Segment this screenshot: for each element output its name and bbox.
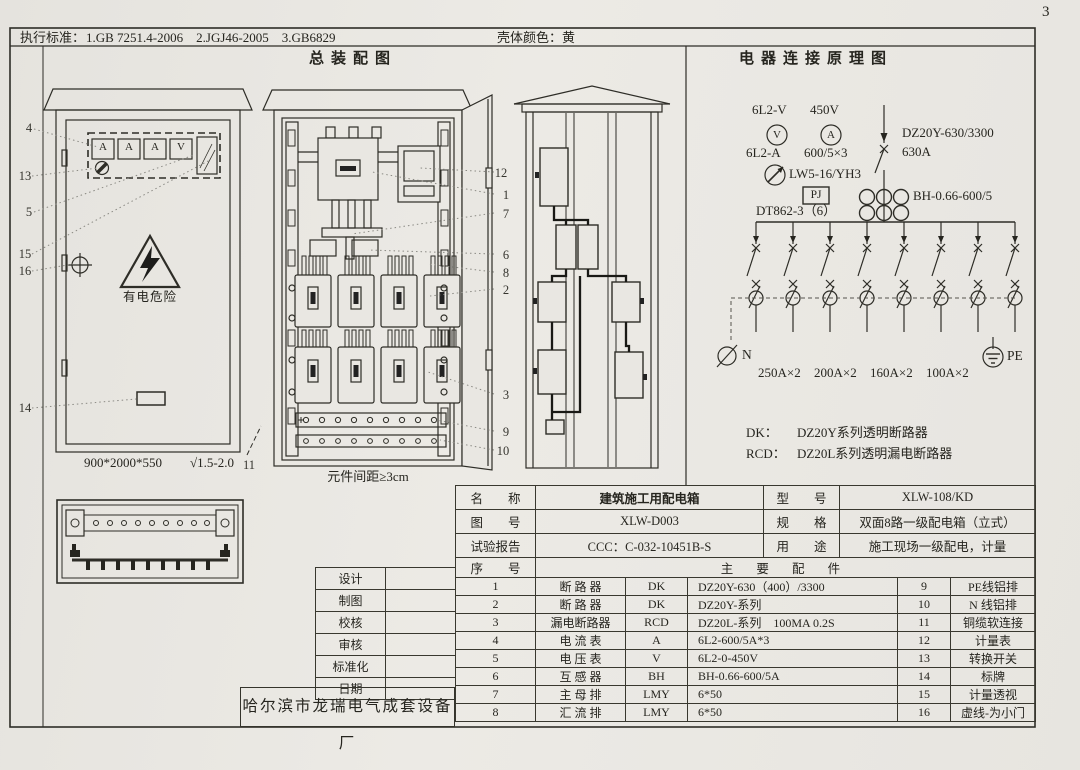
callout: 4 <box>18 121 40 135</box>
callout: 13 <box>14 169 36 183</box>
part-spec: DZ20L-系列 100MA 0.2S <box>688 614 898 632</box>
part-no: 7 <box>456 686 536 704</box>
sign-row: 设计 <box>316 568 456 590</box>
legend-dk-desc: DZ20Y系列透明断路器 <box>797 426 928 441</box>
ct-ratio: 600/5×3 <box>804 146 847 161</box>
part-name: 汇 流 排 <box>536 704 626 722</box>
sign-label: 制图 <box>316 590 386 612</box>
branch-circuits <box>747 222 1022 332</box>
legend-rcd-desc: DZ20L系列透明漏电断路器 <box>797 447 952 462</box>
part-name: 电 压 表 <box>536 650 626 668</box>
sign-row: 制图 <box>316 590 456 612</box>
callout: 14 <box>14 401 36 415</box>
part-name2: N 线铝排 <box>951 596 1036 614</box>
breaker-row-1 <box>289 256 460 327</box>
sign-value <box>386 590 456 612</box>
part-row: 3漏电断路器RCDDZ20L-系列 100MA 0.2S11铜缆软连接 <box>456 614 1036 632</box>
part-code: RCD <box>626 614 688 632</box>
part-no2: 10 <box>898 596 951 614</box>
side-view-drawing <box>514 86 670 468</box>
field-label: 规 格 <box>764 510 840 534</box>
switch-model: LW5-16/YH3 <box>789 167 861 182</box>
ct-model: BH-0.66-600/5 <box>913 189 992 204</box>
schematic-title: 电器连接原理图 <box>726 51 906 68</box>
callout: 2 <box>495 283 517 297</box>
part-name2: 计量表 <box>951 632 1036 650</box>
part-code: DK <box>626 596 688 614</box>
panel-meter-label: A <box>118 141 140 154</box>
open-view-drawing <box>263 90 494 470</box>
part-name: 断 路 器 <box>536 578 626 596</box>
neutral-label: N <box>742 347 752 363</box>
part-row: 6互 感 器BHBH-0.66-600/5A14标牌 <box>456 668 1036 686</box>
part-no2: 13 <box>898 650 951 668</box>
model-number: XLW-108/KD <box>840 486 1036 510</box>
field-label: 试验报告 <box>456 534 536 558</box>
table-row: 试验报告 CCC：C-032-10451B-S 用 途 施工现场一级配电，计量 <box>456 534 1036 558</box>
legend-dk-term: DK： <box>746 426 778 441</box>
part-code: LMY <box>626 704 688 722</box>
callout: 6 <box>495 248 517 262</box>
parts-header: 主 要 配 件 <box>536 558 1036 578</box>
sign-label: 标准化 <box>316 656 386 678</box>
panel-meter-label: A <box>92 141 114 154</box>
scanned-drawing-page: 3 执行标准： 1.GB 7251.4-2006 2.JGJ46-2005 3.… <box>0 0 1080 770</box>
table-row: 序 号 主 要 配 件 <box>456 558 1036 578</box>
standards-label: 执行标准： <box>20 31 85 46</box>
branch-rating: 160A×2 <box>870 366 913 381</box>
part-no: 3 <box>456 614 536 632</box>
voltmeter-symbol-letter: V <box>767 129 787 142</box>
part-spec: 6L2-600/5A*3 <box>688 632 898 650</box>
pj-label: PJ <box>803 189 829 202</box>
field-label: 名 称 <box>456 486 536 510</box>
branch-rating: 200A×2 <box>814 366 857 381</box>
sign-value <box>386 656 456 678</box>
branch-rating: 250A×2 <box>758 366 801 381</box>
sign-label: 校核 <box>316 612 386 634</box>
assembly-title: 总装配图 <box>268 51 438 68</box>
signature-table: 设计 制图 校核 审核 标准化 日期 <box>315 567 456 700</box>
part-spec: DZ20Y-630（400）/3300 <box>688 578 898 596</box>
panel-meter-label: V <box>170 141 192 154</box>
part-row: 7主 母 排LMY6*5015计量透视 <box>456 686 1036 704</box>
branch-rating: 100A×2 <box>926 366 969 381</box>
specification: 双面8路一级配电箱（立式） <box>840 510 1036 534</box>
callout: 16 <box>14 264 36 278</box>
part-no2: 9 <box>898 578 951 596</box>
part-no2: 14 <box>898 668 951 686</box>
page-number: 3 <box>1042 4 1050 21</box>
callout: 9 <box>495 425 517 439</box>
callout: 1 <box>495 188 517 202</box>
callout: 10 <box>492 444 514 458</box>
part-no: 6 <box>456 668 536 686</box>
sign-row: 标准化 <box>316 656 456 678</box>
part-no: 5 <box>456 650 536 668</box>
warning-text: 有电危险 <box>114 290 186 304</box>
standards-value: 1.GB 7251.4-2006 2.JGJ46-2005 3.GB6829 <box>86 31 336 46</box>
parts-header-table: 序 号 主 要 配 件 <box>455 557 1036 578</box>
part-name: 主 母 排 <box>536 686 626 704</box>
part-code: A <box>626 632 688 650</box>
sign-value <box>386 568 456 590</box>
product-name: 建筑施工用配电箱 <box>536 486 764 510</box>
shell-color-label: 壳体颜色： <box>497 31 562 46</box>
part-row: 5电 压 表V6L2-0-450V13转换开关 <box>456 650 1036 668</box>
part-no2: 12 <box>898 632 951 650</box>
callout-11: 11 <box>238 458 260 472</box>
cabinet-dimension: 900*2000*550 <box>84 456 162 471</box>
table-row: 名 称 建筑施工用配电箱 型 号 XLW-108/KD <box>456 486 1036 510</box>
panel-meter-label: A <box>144 141 166 154</box>
part-code: DK <box>626 578 688 596</box>
busbar-detail-drawing <box>57 500 243 583</box>
part-name2: 转换开关 <box>951 650 1036 668</box>
part-spec: 6L2-0-450V <box>688 650 898 668</box>
callout: 8 <box>495 266 517 280</box>
voltmeter-model: 6L2-V <box>752 103 787 118</box>
ammeter-symbol-letter: A <box>821 129 841 142</box>
part-name2: PE线铝排 <box>951 578 1036 596</box>
field-label: 用 途 <box>764 534 840 558</box>
shell-color-value: 黄 <box>562 31 575 46</box>
part-spec: 6*50 <box>688 704 898 722</box>
callout: 5 <box>18 205 40 219</box>
part-row: 8汇 流 排LMY6*5016虚线-为小门 <box>456 704 1036 722</box>
seq-header: 序 号 <box>456 558 536 578</box>
part-name2: 计量透视 <box>951 686 1036 704</box>
energy-meter-model: DT862-3（6） <box>756 204 836 219</box>
part-no2: 15 <box>898 686 951 704</box>
part-spec: 6*50 <box>688 686 898 704</box>
voltmeter-range: 450V <box>810 103 839 118</box>
sign-value <box>386 634 456 656</box>
sign-row: 校核 <box>316 612 456 634</box>
parts-table: 1断 路 器DKDZ20Y-630（400）/33009PE线铝排 2断 路 器… <box>455 577 1036 722</box>
legend-rcd-term: RCD： <box>746 447 786 462</box>
breaker-row-2 <box>289 330 460 403</box>
part-row: 1断 路 器DKDZ20Y-630（400）/33009PE线铝排 <box>456 578 1036 596</box>
surface-finish: √1.5-2.0 <box>190 456 234 471</box>
title-block-header-table: 名 称 建筑施工用配电箱 型 号 XLW-108/KD 图 号 XLW-D003… <box>455 485 1036 558</box>
part-no: 2 <box>456 596 536 614</box>
pe-label: PE <box>1007 348 1023 364</box>
part-spec: DZ20Y-系列 <box>688 596 898 614</box>
part-code: V <box>626 650 688 668</box>
sign-row: 审核 <box>316 634 456 656</box>
table-row: 图 号 XLW-D003 规 格 双面8路一级配电箱（立式） <box>456 510 1036 534</box>
part-no: 4 <box>456 632 536 650</box>
part-row: 2断 路 器DKDZ20Y-系列10N 线铝排 <box>456 596 1036 614</box>
spacing-note: 元件间距≥3cm <box>293 470 443 485</box>
field-label: 型 号 <box>764 486 840 510</box>
test-report: CCC：C-032-10451B-S <box>536 534 764 558</box>
sign-value <box>386 612 456 634</box>
part-name: 互 感 器 <box>536 668 626 686</box>
part-name: 漏电断路器 <box>536 614 626 632</box>
part-name2: 虚线-为小门 <box>951 704 1036 722</box>
callout: 12 <box>490 166 512 180</box>
part-no: 1 <box>456 578 536 596</box>
callout: 3 <box>495 388 517 402</box>
manufacturer-name: 哈尔滨市龙瑞电气成套设备厂 <box>240 687 455 727</box>
ammeter-model: 6L2-A <box>746 146 781 161</box>
main-breaker-rating: 630A <box>902 145 931 160</box>
part-no: 8 <box>456 704 536 722</box>
part-row: 4电 流 表A6L2-600/5A*312计量表 <box>456 632 1036 650</box>
sign-label: 设计 <box>316 568 386 590</box>
sign-label: 审核 <box>316 634 386 656</box>
part-name: 电 流 表 <box>536 632 626 650</box>
part-no2: 11 <box>898 614 951 632</box>
part-spec: BH-0.66-600/5A <box>688 668 898 686</box>
part-name: 断 路 器 <box>536 596 626 614</box>
part-code: LMY <box>626 686 688 704</box>
drawing-number: XLW-D003 <box>536 510 764 534</box>
usage: 施工现场一级配电，计量 <box>840 534 1036 558</box>
callout: 15 <box>14 247 36 261</box>
callout: 7 <box>495 207 517 221</box>
main-breaker-model: DZ20Y-630/3300 <box>902 126 994 141</box>
part-no2: 16 <box>898 704 951 722</box>
callout-leaders-left <box>32 129 210 408</box>
field-label: 图 号 <box>456 510 536 534</box>
part-name2: 铜缆软连接 <box>951 614 1036 632</box>
part-name2: 标牌 <box>951 668 1036 686</box>
part-code: BH <box>626 668 688 686</box>
